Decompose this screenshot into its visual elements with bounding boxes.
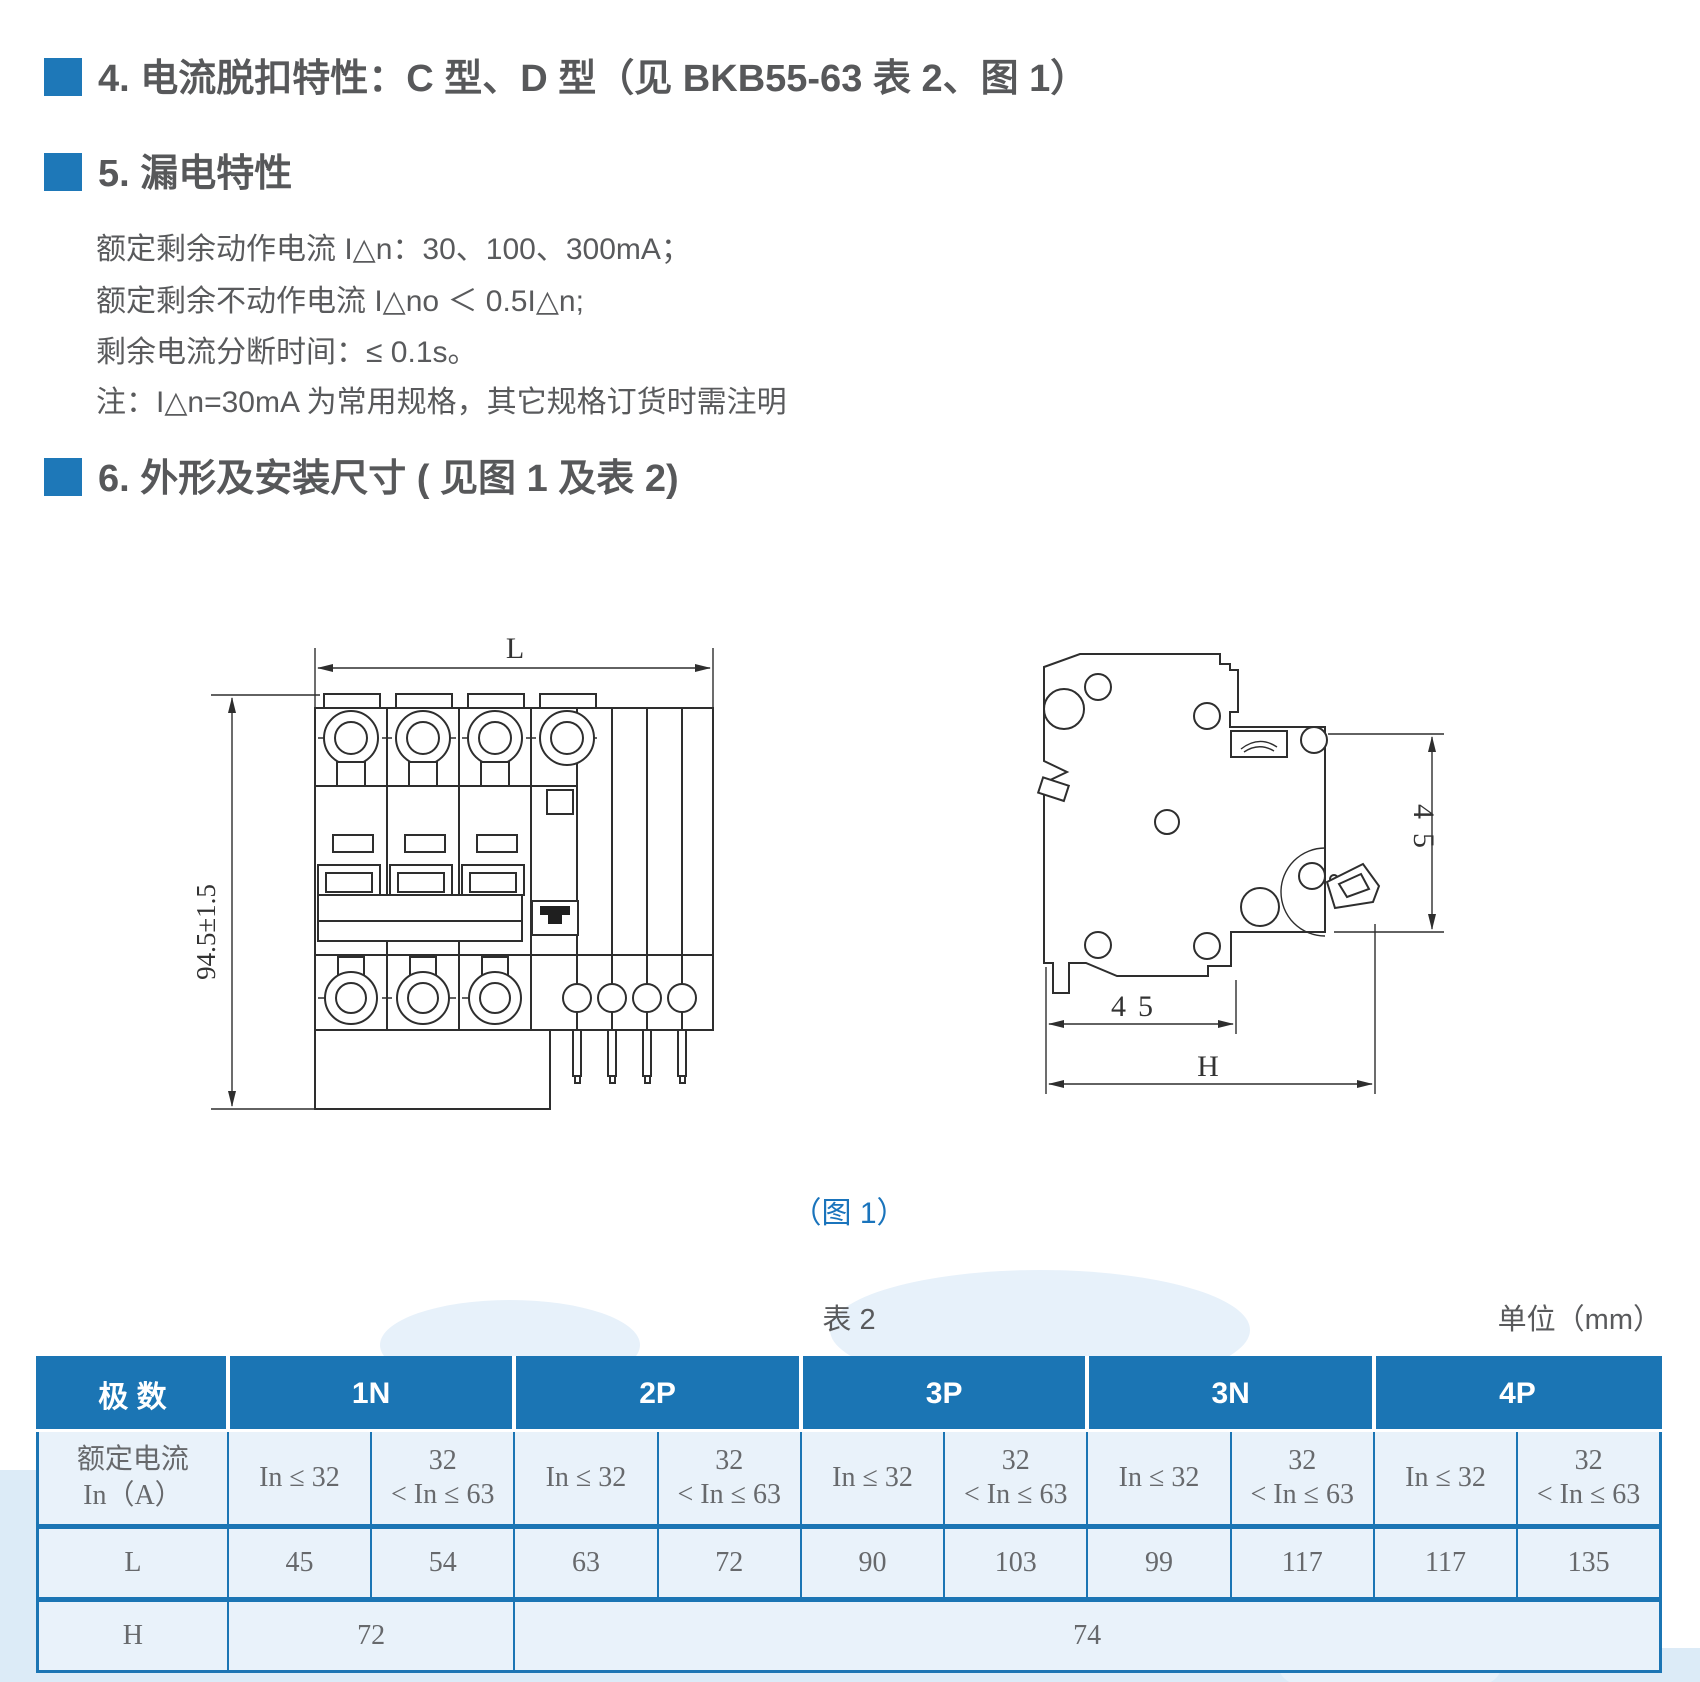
header-3N: 3N <box>1087 1358 1374 1431</box>
section-5-heading: 5. 漏电特性 <box>44 153 292 195</box>
section-bullet-icon <box>44 458 82 496</box>
L-value: 45 <box>228 1527 371 1600</box>
L-value: 117 <box>1374 1527 1517 1600</box>
L-value: 90 <box>801 1527 944 1600</box>
section-bullet-icon <box>44 58 82 96</box>
range-cell: 32< In ≤ 63 <box>1231 1431 1374 1527</box>
rated-current-label: 额定电流 In（A） <box>38 1431 228 1527</box>
section-4-title: 4. 电流脱扣特性：C 型、D 型（见 BKB55-63 表 2、图 1） <box>98 58 1088 100</box>
dimension-table: 极 数 1N 2P 3P 3N 4P 额定电流 In（A） In ≤ 32 32… <box>36 1356 1662 1673</box>
L-value: 54 <box>371 1527 514 1600</box>
L-value: 72 <box>658 1527 801 1600</box>
section-6-heading: 6. 外形及安装尺寸 ( 见图 1 及表 2) <box>44 458 679 500</box>
range-cell: 32< In ≤ 63 <box>371 1431 514 1527</box>
header-poles: 极 数 <box>38 1358 228 1431</box>
side-view-drawing: 45 45 H <box>930 632 1490 1107</box>
leakage-spec-line-1: 额定剩余动作电流 I△n：30、100、300mA； <box>96 224 691 268</box>
length-row: L 45 54 63 72 90 103 99 117 117 135 <box>38 1527 1661 1600</box>
H-value: 72 <box>228 1600 515 1672</box>
dim-label-L: L <box>506 632 524 665</box>
H-value: 74 <box>514 1600 1660 1672</box>
table-title: 表 2 <box>36 1296 1662 1338</box>
height-row: H 72 74 <box>38 1600 1661 1672</box>
section-6-title: 6. 外形及安装尺寸 ( 见图 1 及表 2) <box>98 458 679 500</box>
header-3P: 3P <box>801 1358 1088 1431</box>
leakage-spec-line-4: 注：I△n=30mA 为常用规格，其它规格订货时需注明 <box>96 377 787 421</box>
range-cell: In ≤ 32 <box>1374 1431 1517 1527</box>
datasheet-page: 4. 电流脱扣特性：C 型、D 型（见 BKB55-63 表 2、图 1） 5.… <box>0 0 1700 1682</box>
range-cell: In ≤ 32 <box>801 1431 944 1527</box>
L-value: 117 <box>1231 1527 1374 1600</box>
dim-label-H: H <box>1197 1050 1219 1083</box>
range-cell: In ≤ 32 <box>228 1431 371 1527</box>
L-value: 63 <box>514 1527 657 1600</box>
rated-current-row: 额定电流 In（A） In ≤ 32 32< In ≤ 63 In ≤ 32 3… <box>38 1431 1661 1527</box>
header-1N: 1N <box>228 1358 515 1431</box>
L-value: 103 <box>944 1527 1087 1600</box>
section-4-heading: 4. 电流脱扣特性：C 型、D 型（见 BKB55-63 表 2、图 1） <box>44 58 1088 100</box>
range-cell: 32< In ≤ 63 <box>1517 1431 1660 1527</box>
range-cell: 32< In ≤ 63 <box>658 1431 801 1527</box>
front-view-drawing: L 94.5±1.5 <box>185 632 745 1122</box>
range-cell: In ≤ 32 <box>1087 1431 1230 1527</box>
figure-caption: （图 1） <box>36 1188 1662 1232</box>
header-4P: 4P <box>1374 1358 1661 1431</box>
table-unit-label: 单位（mm） <box>1498 1296 1662 1338</box>
range-cell: 32< In ≤ 63 <box>944 1431 1087 1527</box>
L-value: 135 <box>1517 1527 1660 1600</box>
watermark-strip-left <box>0 1470 36 1660</box>
leakage-spec-line-2: 额定剩余不动作电流 I△no ＜ 0.5I△n; <box>96 276 584 320</box>
table-header-row: 极 数 1N 2P 3P 3N 4P <box>38 1358 1661 1431</box>
dim-label-bottom-45: 45 <box>1111 990 1165 1023</box>
section-bullet-icon <box>44 153 82 191</box>
leakage-spec-line-3: 剩余电流分断时间：≤ 0.1s。 <box>96 327 478 371</box>
dim-label-depth-45: 45 <box>1407 804 1440 862</box>
row-H-label: H <box>38 1600 228 1672</box>
section-5-title: 5. 漏电特性 <box>98 153 292 195</box>
header-2P: 2P <box>514 1358 801 1431</box>
L-value: 99 <box>1087 1527 1230 1600</box>
range-cell: In ≤ 32 <box>514 1431 657 1527</box>
dim-label-945: 94.5±1.5 <box>191 884 221 980</box>
row-L-label: L <box>38 1527 228 1600</box>
